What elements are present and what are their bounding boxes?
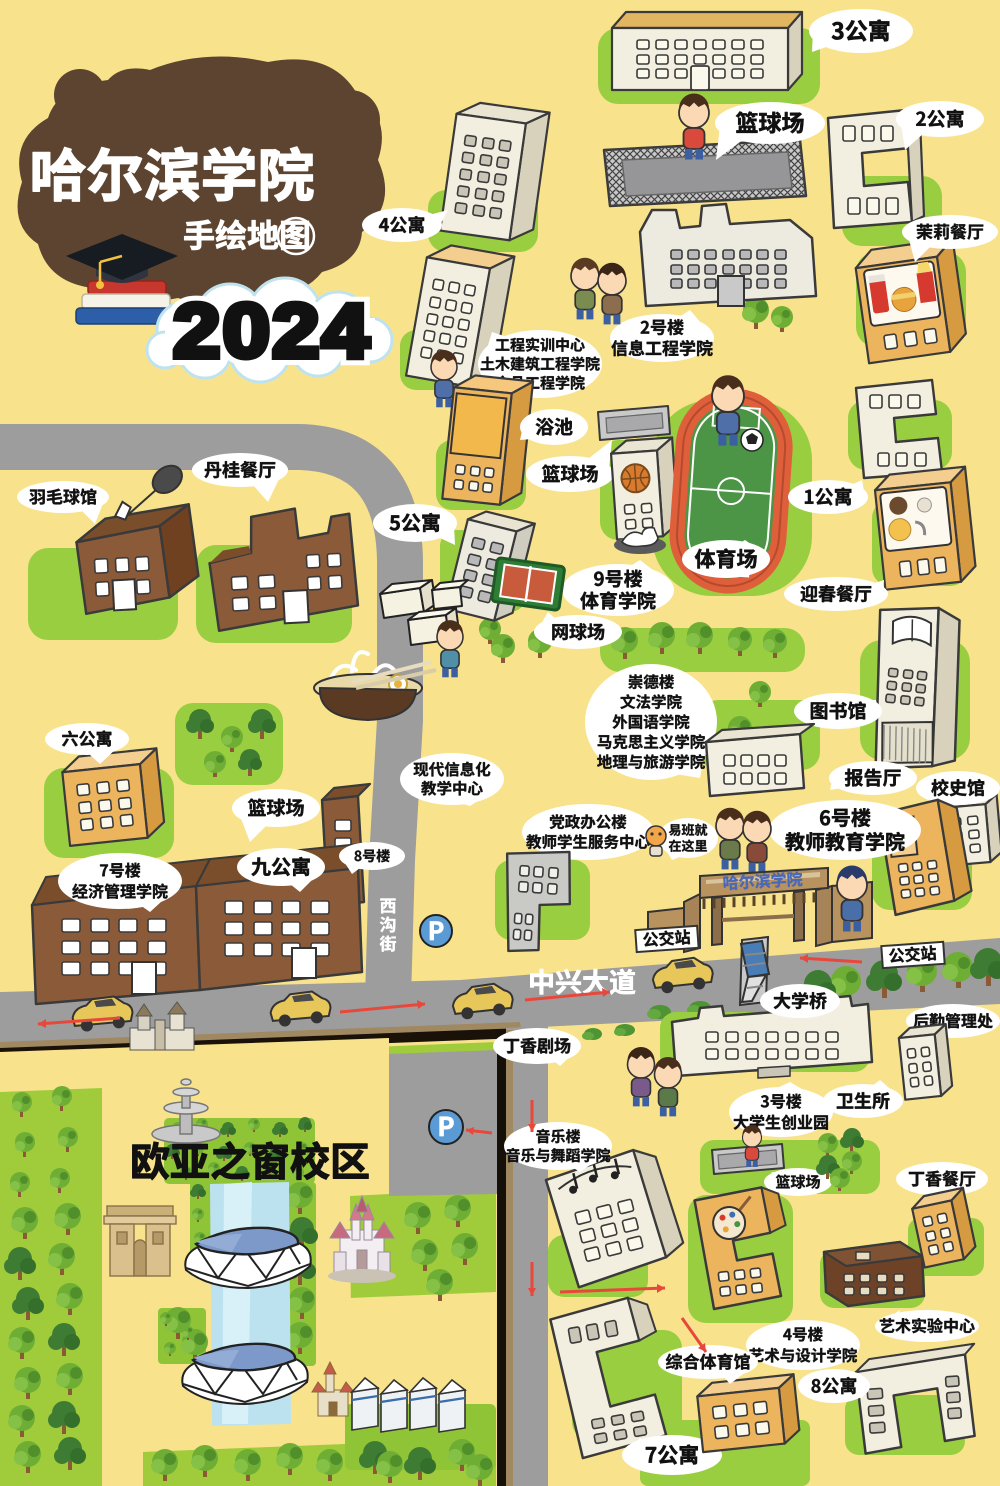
svg-text:2024: 2024 xyxy=(173,289,371,374)
